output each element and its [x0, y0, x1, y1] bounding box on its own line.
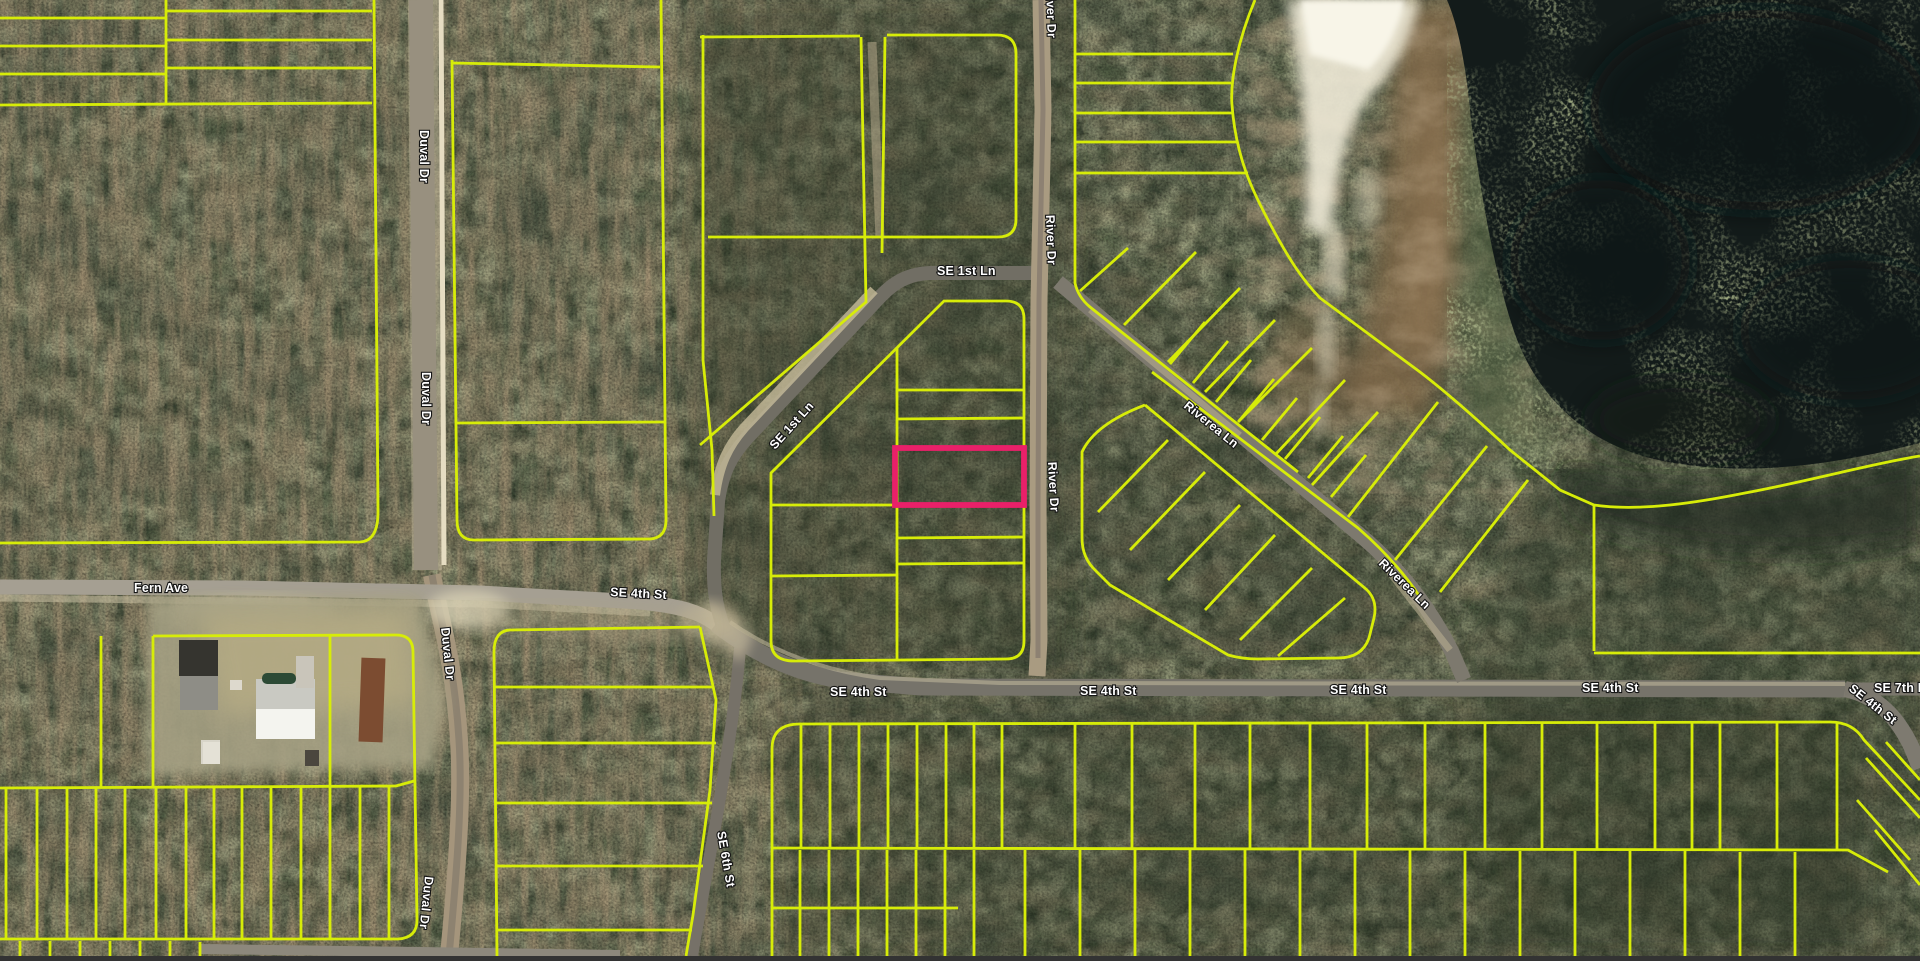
svg-text:SE 4th St: SE 4th St [1080, 684, 1137, 698]
svg-text:SE 4th St: SE 4th St [1330, 683, 1387, 697]
svg-text:River Dr: River Dr [1043, 0, 1059, 38]
svg-text:Fern Ave: Fern Ave [134, 581, 188, 595]
svg-text:SE 4th St: SE 4th St [610, 585, 668, 602]
svg-text:Duval Dr: Duval Dr [417, 130, 431, 183]
svg-text:SE 7th Pl: SE 7th Pl [1874, 681, 1920, 695]
svg-text:SE 4th St: SE 4th St [830, 685, 887, 699]
svg-text:River Dr: River Dr [1043, 215, 1059, 266]
svg-text:Duval Dr: Duval Dr [419, 372, 433, 425]
svg-text:SE 1st Ln: SE 1st Ln [937, 264, 996, 278]
svg-text:SE 4th St: SE 4th St [1582, 681, 1639, 695]
svg-text:River Dr: River Dr [1045, 461, 1062, 512]
